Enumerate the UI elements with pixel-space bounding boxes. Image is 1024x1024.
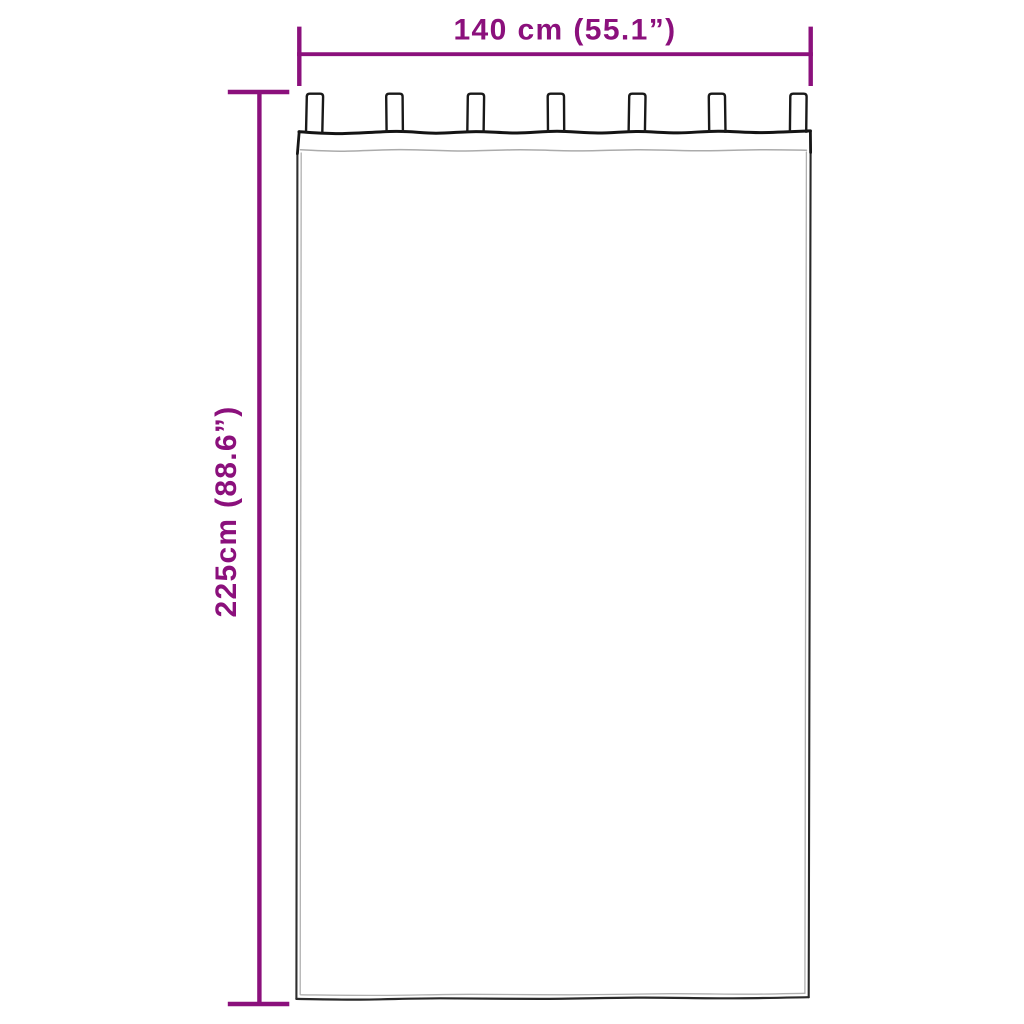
svg-text:225cm (88.6”): 225cm (88.6”) bbox=[210, 405, 243, 617]
svg-text:140 cm (55.1”): 140 cm (55.1”) bbox=[453, 13, 676, 46]
